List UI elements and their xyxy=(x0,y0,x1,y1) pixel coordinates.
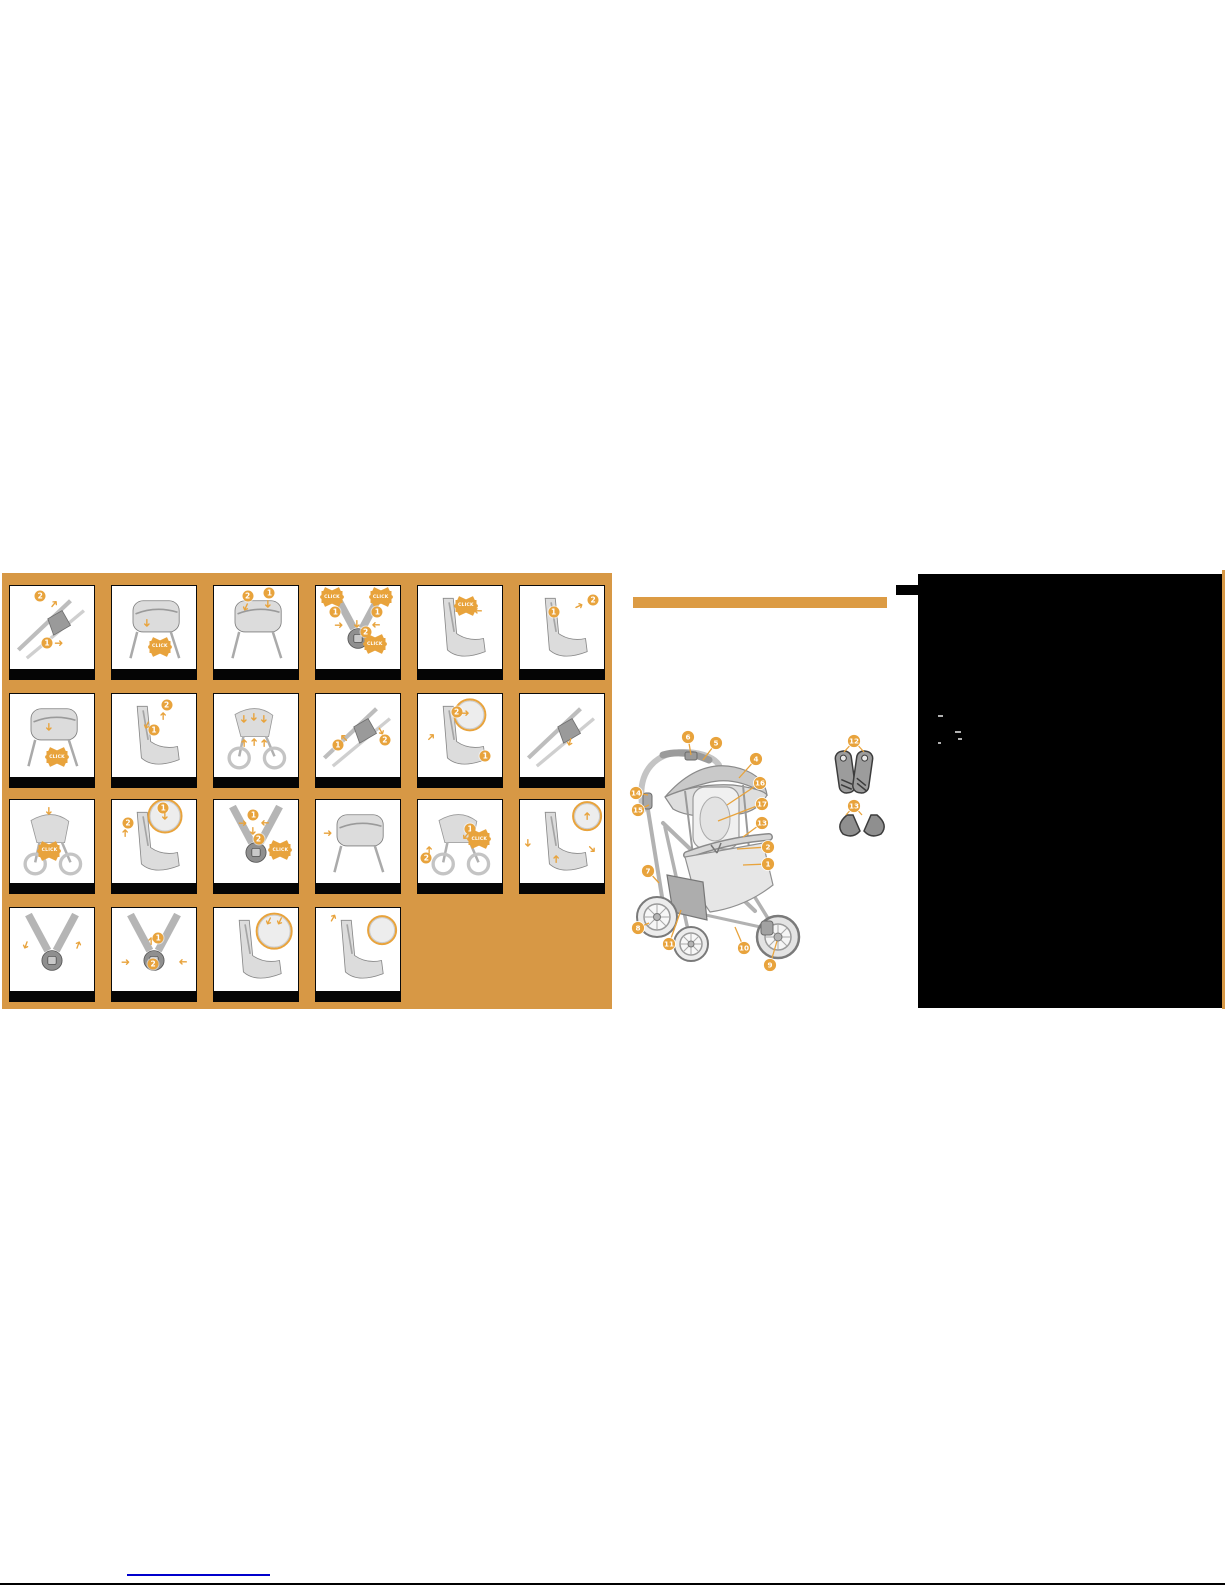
step-illustration-box: ➜CLICK xyxy=(10,694,94,776)
instruction-step-panel: 1➜2 xyxy=(519,585,605,680)
step-illustration-harness: ➜1➜➜2 xyxy=(112,908,196,990)
instruction-step-panel: ➜➜➜➜➜➜ xyxy=(213,693,299,788)
step-caption-bar xyxy=(9,777,95,788)
step-caption-bar xyxy=(9,883,95,894)
direction-arrow-icon: ➜ xyxy=(159,812,170,821)
part-callout-label: 13 xyxy=(849,802,859,811)
instruction-step-panel: 1➜2➜ xyxy=(315,693,401,788)
step-caption-bar xyxy=(111,669,197,680)
step-number-badge: 1 xyxy=(330,607,341,618)
direction-arrow-icon: ➜ xyxy=(259,739,270,748)
click-burst-icon: CLICK xyxy=(364,638,385,650)
car-seat-adapters-illustration xyxy=(834,750,873,794)
step-illustration-seat: 2➜1➜ xyxy=(112,800,196,882)
instruction-step-panel: ➜➜ xyxy=(9,907,95,1002)
direction-arrow-icon: ➜ xyxy=(523,838,534,847)
part-callout-label: 16 xyxy=(755,779,765,788)
direction-arrow-icon: ➜ xyxy=(474,605,483,616)
step-illustration-harness: 1➜➜➜2CLICK xyxy=(214,800,298,882)
step-number-badge: 2 xyxy=(242,590,253,601)
instruction-step-panel: 2➜1➜ xyxy=(111,693,197,788)
part-callout-label: 15 xyxy=(633,806,643,815)
stroller-illustration: 65416171321141578111091213 xyxy=(615,715,890,995)
direction-arrow-icon: ➜ xyxy=(121,957,130,968)
direction-arrow-icon: ➜ xyxy=(158,712,169,721)
step-number-badge: 2 xyxy=(35,590,46,601)
faint-text-fragment xyxy=(958,738,962,740)
part-callout-label: 5 xyxy=(713,739,718,748)
step-illustration-seat: ➜ xyxy=(316,908,400,990)
step-caption-bar xyxy=(417,777,503,788)
direction-arrow-icon: ➜ xyxy=(334,619,343,630)
step-illustration-box: ➜CLICK xyxy=(112,586,196,668)
click-burst-icon: CLICK xyxy=(370,591,391,603)
instruction-step-panel: ➜ xyxy=(519,693,605,788)
step-illustration-seat: 2➜➜1 xyxy=(418,694,502,776)
step-caption-bar xyxy=(315,777,401,788)
direction-arrow-icon: ➜ xyxy=(261,817,270,828)
direction-arrow-icon: ➜ xyxy=(120,828,131,837)
click-burst-icon: CLICK xyxy=(270,844,291,856)
click-burst-icon: CLICK xyxy=(39,845,60,857)
instruction-step-panel: ➜➜➜➜ xyxy=(519,799,605,894)
part-callout-label: 8 xyxy=(635,924,640,933)
text-panel xyxy=(918,574,1223,1008)
part-callout-label: 6 xyxy=(685,733,690,742)
step-caption-bar xyxy=(315,669,401,680)
step-illustration-chassis: ➜➜➜➜➜➜ xyxy=(214,694,298,776)
step-number-badge: 1 xyxy=(41,638,52,649)
manual-page: 2➜1➜➜CLICK2➜1➜CLICKCLICK11➜➜➜2CLICKCLICK… xyxy=(0,0,1225,1585)
part-callout-label: 1 xyxy=(765,860,770,869)
instruction-step-panel: CLICKCLICK11➜➜➜2CLICK xyxy=(315,585,401,680)
direction-arrow-icon: ➜ xyxy=(423,845,434,854)
instruction-step-panel: 2➜➜1 xyxy=(417,693,503,788)
instruction-step-panel: ➜CLICK xyxy=(111,585,197,680)
step-illustration-harness: ➜➜ xyxy=(10,908,94,990)
instruction-step-panel: ➜➜ xyxy=(213,907,299,1002)
step-caption-bar xyxy=(9,991,95,1002)
instruction-step-panel: 2➜1➜ xyxy=(9,585,95,680)
instruction-step-panel: 2➜1➜ xyxy=(213,585,299,680)
step-number-badge: 1 xyxy=(548,607,559,618)
instruction-step-panel: 2➜1➜ xyxy=(111,799,197,894)
direction-arrow-icon: ➜ xyxy=(178,957,187,968)
assembly-steps-panel: 2➜1➜➜CLICK2➜1➜CLICKCLICK11➜➜➜2CLICKCLICK… xyxy=(2,573,612,1009)
step-illustration-seat: 1➜2 xyxy=(520,586,604,668)
instruction-step-panel: ➜ xyxy=(315,799,401,894)
step-illustration-box: 2➜1➜ xyxy=(214,586,298,668)
click-burst-icon: CLICK xyxy=(149,641,170,653)
step-caption-bar xyxy=(519,669,605,680)
front-right-wheel xyxy=(757,916,799,958)
click-burst-icon: CLICK xyxy=(47,751,68,763)
step-number-badge: 2 xyxy=(588,594,599,605)
comfort-pads-illustration xyxy=(840,815,884,836)
instruction-step-panel: ➜CLICK xyxy=(9,799,95,894)
detail-magnifier-circle xyxy=(367,915,397,945)
direction-arrow-icon: ➜ xyxy=(323,827,332,838)
step-number-badge: 1 xyxy=(248,809,259,820)
step-number-badge: 1 xyxy=(480,751,491,762)
direction-arrow-icon: ➜ xyxy=(262,599,273,608)
step-illustration-box: ➜ xyxy=(316,800,400,882)
part-callout-label: 2 xyxy=(765,843,770,852)
faint-text-fragment xyxy=(938,742,941,744)
part-callout-label: 7 xyxy=(645,867,650,876)
step-illustration-chassis: 1➜CLICK2➜ xyxy=(418,800,502,882)
direction-arrow-icon: ➜ xyxy=(142,618,153,627)
instruction-step-panel: CLICK➜ xyxy=(417,585,503,680)
instruction-step-panel: ➜1➜➜2 xyxy=(111,907,197,1002)
step-illustration-seat: 2➜1➜ xyxy=(112,694,196,776)
direction-arrow-icon: ➜ xyxy=(43,722,54,731)
part-callout-label: 10 xyxy=(739,944,749,953)
step-caption-bar xyxy=(111,991,197,1002)
step-illustration-frame: ➜ xyxy=(520,694,604,776)
direction-arrow-icon: ➜ xyxy=(54,638,63,649)
step-caption-bar xyxy=(111,883,197,894)
step-caption-bar xyxy=(417,883,503,894)
section-title-bar xyxy=(633,597,887,608)
step-number-badge: 2 xyxy=(253,834,264,845)
parts-overview-diagram: 65416171321141578111091213 xyxy=(615,715,890,995)
direction-arrow-icon: ➜ xyxy=(371,619,380,630)
direction-arrow-icon: ➜ xyxy=(259,714,270,723)
part-callout-label: 12 xyxy=(849,737,859,746)
step-illustration-frame: 2➜1➜ xyxy=(10,586,94,668)
part-callout-label: 9 xyxy=(767,961,772,970)
step-illustration-seat: ➜➜ xyxy=(214,908,298,990)
part-callout-label: 11 xyxy=(664,940,674,949)
step-number-badge: 2 xyxy=(161,700,172,711)
part-callout-label: 4 xyxy=(753,755,758,764)
direction-arrow-icon: ➜ xyxy=(460,707,469,718)
step-illustration-seat: ➜➜➜➜ xyxy=(520,800,604,882)
step-caption-bar xyxy=(315,883,401,894)
direction-arrow-icon: ➜ xyxy=(582,812,593,821)
step-illustration-seat: CLICK➜ xyxy=(418,586,502,668)
step-caption-bar xyxy=(519,777,605,788)
direction-arrow-icon: ➜ xyxy=(43,807,54,816)
page-corner-tab xyxy=(896,585,918,595)
step-caption-bar xyxy=(519,883,605,894)
step-number-badge: 2 xyxy=(148,958,159,969)
instruction-step-panel: 1➜➜➜2CLICK xyxy=(213,799,299,894)
step-caption-bar xyxy=(213,777,299,788)
link-underline[interactable] xyxy=(127,1574,270,1576)
step-number-badge: 2 xyxy=(122,817,133,828)
part-callout-label: 13 xyxy=(757,819,767,828)
step-number-badge: 1 xyxy=(153,932,164,943)
step-illustration-frame: 1➜2➜ xyxy=(316,694,400,776)
instruction-step-panel: 1➜CLICK2➜ xyxy=(417,799,503,894)
front-left-wheel xyxy=(674,927,708,961)
step-caption-bar xyxy=(213,991,299,1002)
step-caption-bar xyxy=(213,883,299,894)
step-illustration-harness: CLICKCLICK11➜➜➜2CLICK xyxy=(316,586,400,668)
direction-arrow-icon: ➜ xyxy=(551,854,562,863)
faint-text-fragment xyxy=(938,715,943,717)
faint-text-fragment xyxy=(955,731,961,733)
part-callout-label: 14 xyxy=(631,789,641,798)
part-callout-label: 17 xyxy=(757,800,767,809)
instruction-step-panel: ➜CLICK xyxy=(9,693,95,788)
click-burst-icon: CLICK xyxy=(469,833,490,845)
step-caption-bar xyxy=(417,669,503,680)
step-caption-bar xyxy=(9,669,95,680)
step-caption-bar xyxy=(111,777,197,788)
step-number-badge: 1 xyxy=(372,607,383,618)
click-burst-icon: CLICK xyxy=(321,591,342,603)
step-illustration-chassis: ➜CLICK xyxy=(10,800,94,882)
step-caption-bar xyxy=(213,669,299,680)
step-number-badge: 1 xyxy=(264,588,275,599)
step-caption-bar xyxy=(315,991,401,1002)
instruction-step-panel: ➜ xyxy=(315,907,401,1002)
